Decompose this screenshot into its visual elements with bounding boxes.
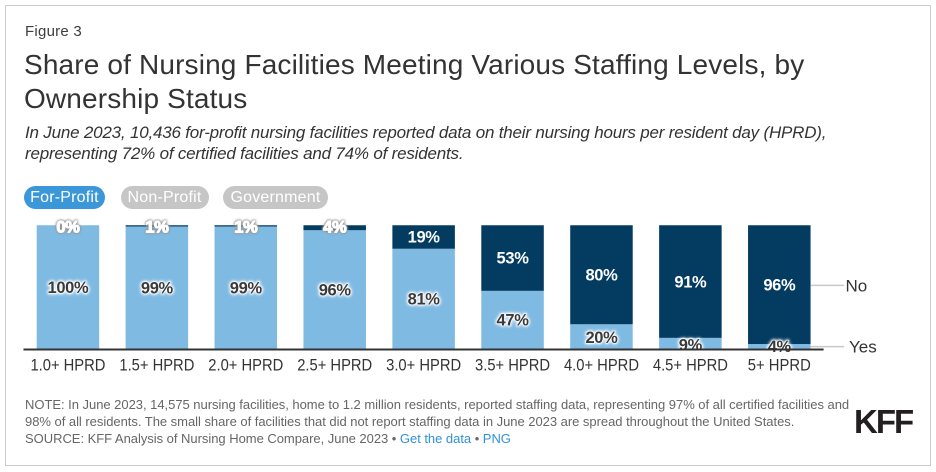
svg-text:5+ HPRD: 5+ HPRD — [748, 356, 811, 375]
svg-text:1%: 1% — [234, 218, 258, 236]
svg-text:1.0+ HPRD: 1.0+ HPRD — [30, 356, 105, 375]
svg-text:1%: 1% — [145, 218, 169, 236]
svg-text:0%: 0% — [56, 218, 80, 236]
svg-text:99%: 99% — [230, 279, 263, 297]
svg-text:3.0+ HPRD: 3.0+ HPRD — [386, 356, 461, 375]
svg-text:80%: 80% — [585, 266, 618, 284]
svg-text:No: No — [846, 277, 868, 296]
svg-text:3.5+ HPRD: 3.5+ HPRD — [475, 356, 550, 375]
svg-text:47%: 47% — [497, 312, 530, 330]
svg-text:2.0+ HPRD: 2.0+ HPRD — [208, 356, 283, 375]
svg-text:53%: 53% — [497, 250, 530, 268]
svg-text:99%: 99% — [141, 279, 174, 297]
svg-text:Yes: Yes — [849, 338, 877, 357]
svg-text:1.5+ HPRD: 1.5+ HPRD — [119, 356, 194, 375]
svg-text:81%: 81% — [408, 291, 441, 309]
svg-text:4%: 4% — [768, 338, 792, 356]
svg-text:96%: 96% — [763, 276, 796, 294]
svg-text:2.5+ HPRD: 2.5+ HPRD — [297, 356, 372, 375]
svg-text:9%: 9% — [679, 337, 703, 355]
svg-text:91%: 91% — [674, 273, 707, 291]
svg-text:100%: 100% — [48, 279, 89, 297]
svg-text:19%: 19% — [408, 229, 441, 247]
svg-text:96%: 96% — [319, 281, 352, 299]
svg-text:4%: 4% — [323, 218, 347, 236]
svg-text:4.5+ HPRD: 4.5+ HPRD — [653, 356, 728, 375]
svg-text:20%: 20% — [585, 329, 618, 347]
svg-text:4.0+ HPRD: 4.0+ HPRD — [564, 356, 639, 375]
